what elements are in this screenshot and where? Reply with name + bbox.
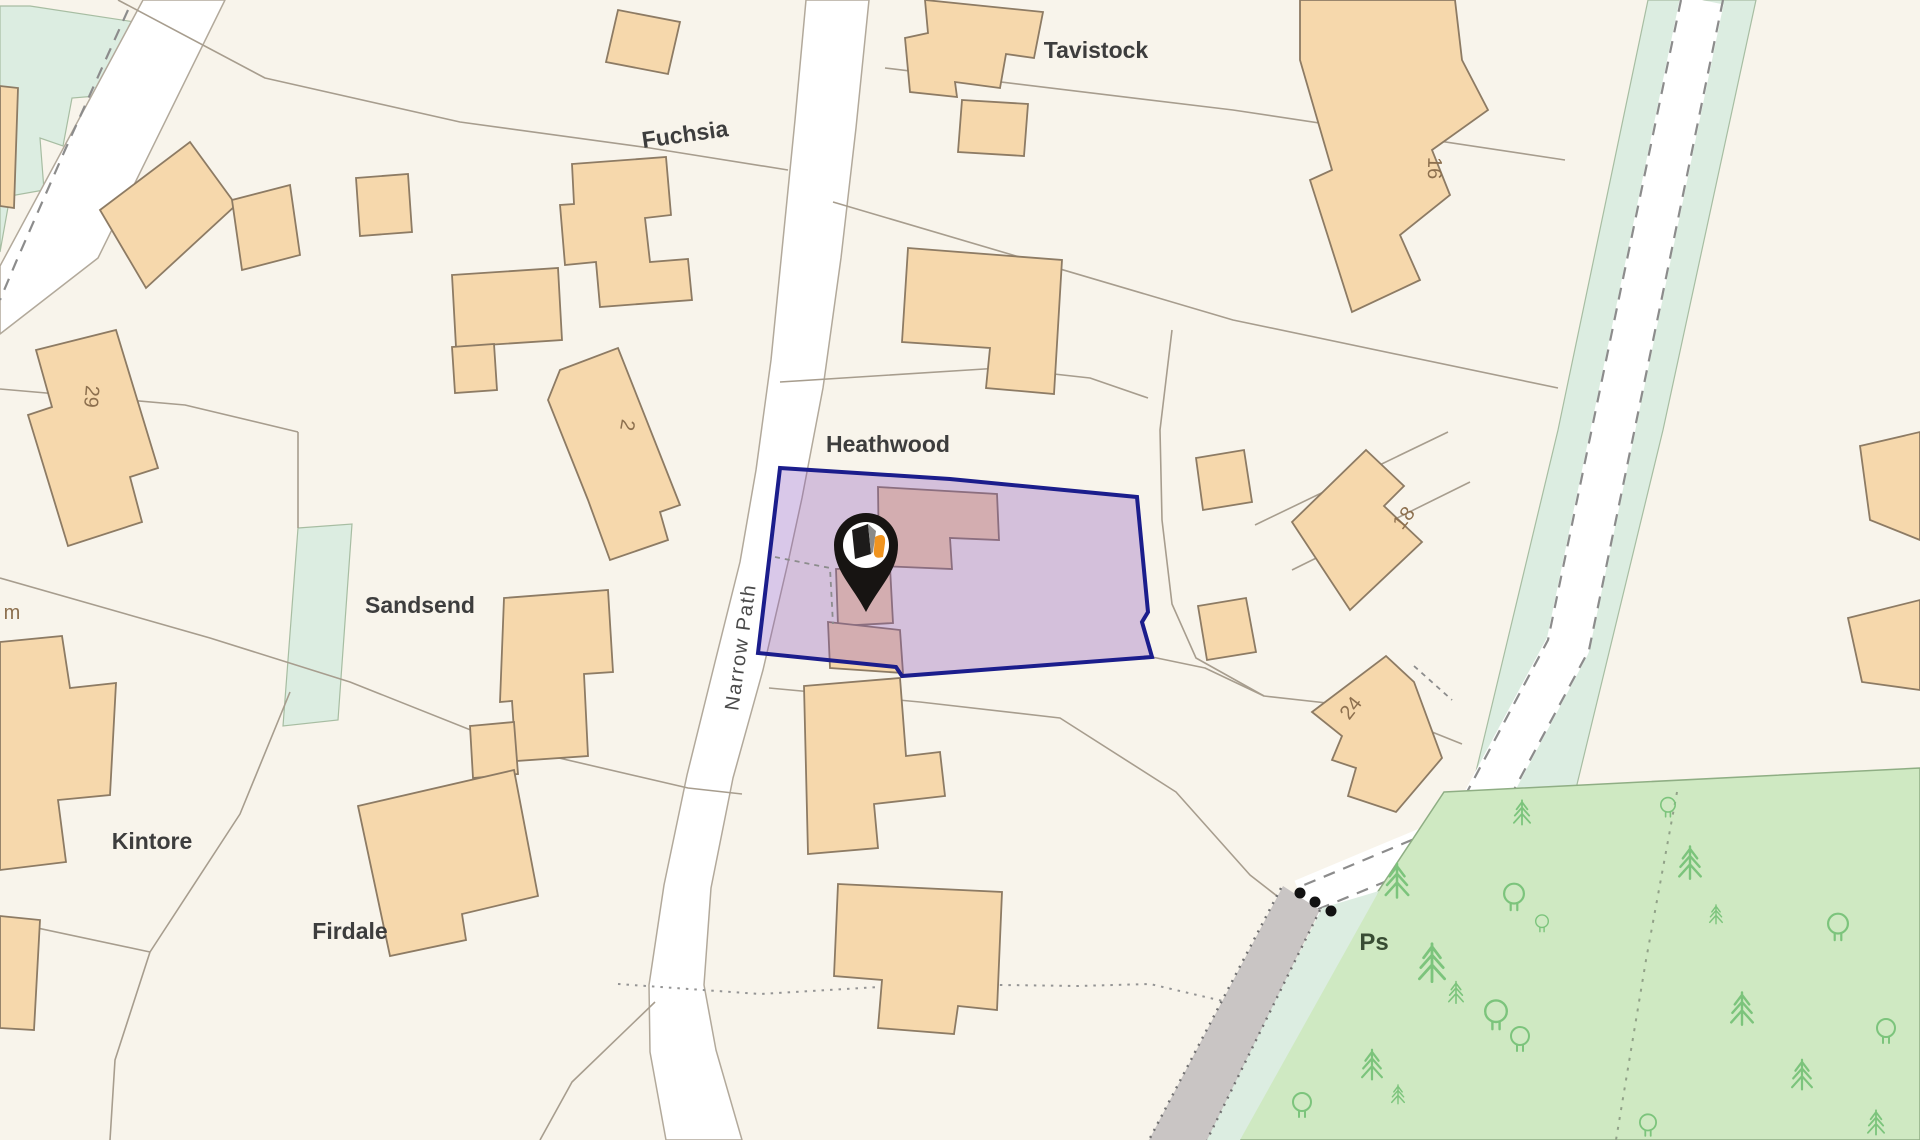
- building: [1198, 598, 1256, 660]
- label-ps: Ps: [1359, 929, 1388, 956]
- boundary-marker-dot: [1310, 897, 1321, 908]
- label-heathwood: Heathwood: [826, 431, 950, 457]
- building: [232, 185, 300, 270]
- map-viewport[interactable]: Tavistock Fuchsia Heathwood Sandsend Kin…: [0, 0, 1920, 1140]
- boundary-marker-dot: [1326, 906, 1337, 917]
- label-number-29: 29: [79, 384, 103, 408]
- label-tavistock: Tavistock: [1044, 37, 1149, 63]
- label-kintore: Kintore: [112, 828, 193, 854]
- label-firdale: Firdale: [312, 918, 387, 944]
- pin-glyph-dark: [852, 524, 871, 559]
- label-number-16: 16: [1423, 157, 1445, 180]
- building: [470, 722, 518, 778]
- label-m-partial: m: [4, 602, 21, 624]
- building: [356, 174, 412, 236]
- highlighted-parcel[interactable]: [758, 468, 1152, 676]
- building: [452, 268, 562, 347]
- building: [452, 344, 497, 393]
- map-canvas[interactable]: Tavistock Fuchsia Heathwood Sandsend Kin…: [0, 0, 1920, 1140]
- label-sandsend: Sandsend: [365, 592, 475, 618]
- boundary-marker-dot: [1295, 888, 1306, 899]
- building: [958, 100, 1028, 156]
- building: [0, 916, 40, 1030]
- building: [0, 86, 18, 208]
- building: [606, 10, 680, 74]
- building: [1196, 450, 1252, 510]
